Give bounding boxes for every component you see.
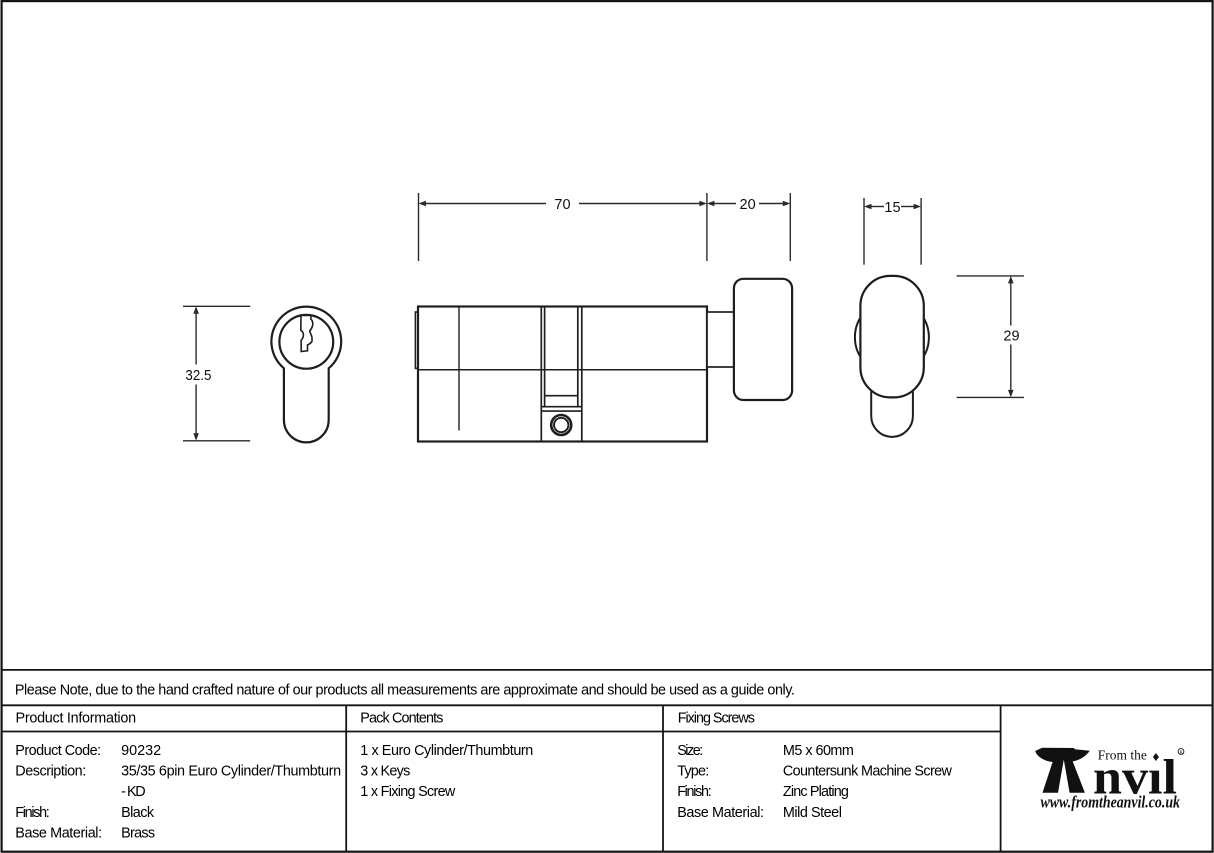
svg-text:Base Material:: Base Material: [15,826,102,842]
svg-text:Type:: Type: [677,764,709,780]
svg-text:Description:: Description: [15,764,86,780]
svg-text:1 x Euro Cylinder/Thumbturn: 1 x Euro Cylinder/Thumbturn [360,743,533,759]
svg-text:Zinc Plating: Zinc Plating [783,784,849,800]
svg-text:90232: 90232 [121,743,161,759]
svg-text:Product Code:: Product Code: [15,743,101,759]
svg-text:15: 15 [884,200,900,216]
svg-text:Brass: Brass [121,826,155,842]
svg-text:Please Note, due to the hand c: Please Note, due to the hand crafted nat… [15,682,795,698]
svg-text:Pack Contents: Pack Contents [360,711,443,727]
svg-text:Countersunk Machine Screw: Countersunk Machine Screw [783,764,953,780]
svg-text:Finish:: Finish: [15,805,50,821]
svg-text:www.fromtheanvil.co.uk: www.fromtheanvil.co.uk [1041,792,1181,811]
svg-text:- KD: - KD [121,784,146,800]
svg-text:1 x Fixing Screw: 1 x Fixing Screw [360,784,456,800]
svg-text:70: 70 [554,197,570,213]
svg-text:Mild Steel: Mild Steel [783,805,842,821]
svg-text:Finish:: Finish: [677,784,712,800]
svg-text:Fixing Screws: Fixing Screws [678,711,755,727]
svg-text:Base Material:: Base Material: [677,805,764,821]
svg-text:Size:: Size: [677,743,703,759]
svg-text:Black: Black [121,805,155,821]
svg-text:29: 29 [1003,329,1019,345]
svg-text:35/35 6pin Euro Cylinder/Thumb: 35/35 6pin Euro Cylinder/Thumbturn [121,764,341,780]
svg-text:M5 x 60mm: M5 x 60mm [783,743,854,759]
svg-text:20: 20 [740,197,756,213]
svg-text:32.5: 32.5 [185,368,211,384]
svg-text:Product Information: Product Information [16,711,137,727]
svg-text:3 x Keys: 3 x Keys [360,764,410,780]
